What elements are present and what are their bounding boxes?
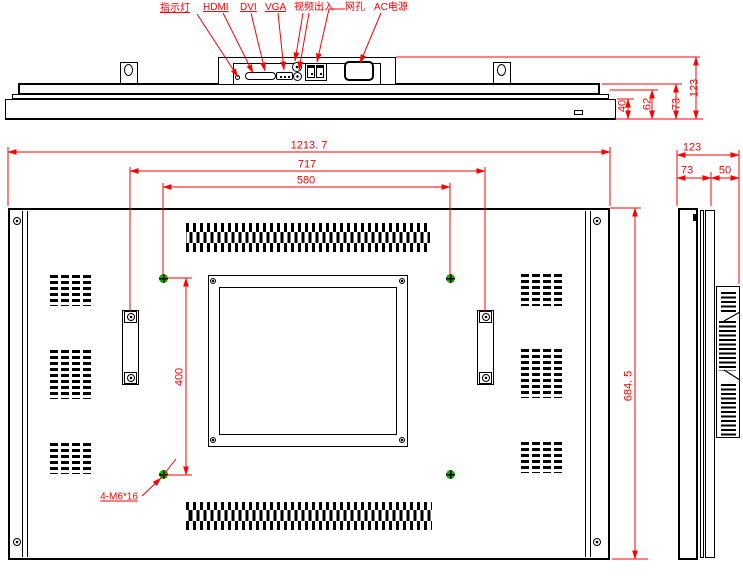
dim-handle-span: 717 — [298, 160, 316, 171]
vent-grid-left-middle — [50, 350, 93, 399]
ac-power-socket — [344, 61, 374, 81]
label-ac-power: AC电源 — [374, 2, 408, 13]
indicator-led — [235, 75, 240, 80]
top-view-handle-left-slot — [124, 64, 133, 76]
label-hdmi: HDMI — [203, 2, 229, 13]
label-video-io: 视频出入 — [294, 2, 334, 13]
access-panel-screw-bottom-left — [210, 437, 216, 443]
access-panel-screw-top-left — [210, 278, 216, 284]
dim-side-total: 123 — [683, 143, 701, 154]
label-vga: VGA — [265, 2, 286, 13]
access-panel-inner — [219, 287, 397, 435]
heatsink-fins-upper — [721, 292, 736, 314]
vesa-hole-bottom-left — [159, 470, 168, 479]
vent-slot-row — [186, 223, 430, 232]
access-panel-screw-top-right — [399, 278, 405, 284]
dim-depth-back: 73 — [672, 97, 683, 111]
access-panel-screw-bottom-right — [399, 437, 405, 443]
top-view-back-body — [18, 83, 600, 94]
vesa-hole-bottom-right — [446, 470, 455, 479]
dim-vesa-width: 580 — [297, 176, 315, 187]
mount-bracket-left-screw-bottom — [127, 374, 135, 382]
note-mount-screws: 4-M6*16 — [100, 492, 138, 503]
rear-corner-screw-top-left — [13, 217, 21, 225]
dim-vesa-height: 400 — [175, 367, 186, 387]
vent-slot-row — [186, 232, 430, 243]
top-view-notch-detail — [574, 110, 583, 115]
mount-bracket-left-screw-top — [127, 313, 135, 321]
side-view-rear-strip-2 — [705, 210, 715, 558]
heatsink-fins-middle — [719, 321, 736, 371]
dim-overall-height: 684. 5 — [624, 370, 635, 403]
vent-slot-row — [186, 510, 432, 521]
heatsink-fins-lower — [721, 384, 736, 437]
rear-vent-bottom — [186, 502, 432, 530]
label-lan-port: 网孔 — [345, 2, 365, 13]
label-indicator: 指示灯 — [160, 3, 190, 14]
vent-grid-left-bottom — [50, 443, 93, 474]
vent-grid-left-top — [50, 275, 93, 306]
rear-corner-screw-bottom-right — [593, 538, 601, 546]
mount-bracket-right-screw-bottom — [482, 374, 490, 382]
engineering-drawing-canvas: 指示灯 HDMI DVI VGA 视频出入 网孔 AC电源 1213. 7 71… — [0, 0, 743, 579]
rear-corner-screw-top-right — [593, 217, 601, 225]
lan-port-1 — [307, 65, 315, 78]
rear-left-edge-strip — [22, 211, 28, 557]
label-dvi: DVI — [240, 2, 257, 13]
dim-depth-front: 40 — [618, 99, 629, 113]
side-view-rear-strip-1 — [700, 210, 704, 558]
rear-corner-screw-bottom-left — [13, 538, 21, 546]
vesa-hole-top-left — [159, 274, 168, 283]
video-jack-lower — [293, 72, 302, 81]
vesa-hole-top-right — [446, 274, 455, 283]
vent-grid-right-bottom — [521, 442, 565, 473]
dim-side-front: 50 — [719, 166, 731, 177]
mount-bracket-right-screw-top — [482, 313, 490, 321]
vent-slot-row — [186, 521, 432, 530]
dim-side-back: 73 — [681, 166, 693, 177]
dim-depth-mid: 62 — [643, 97, 654, 111]
rear-vent-top — [186, 223, 430, 253]
side-view-panel-slab — [678, 208, 698, 560]
lan-port-2 — [316, 65, 324, 78]
vent-grid-right-top — [521, 274, 565, 306]
rear-right-edge-strip — [585, 211, 591, 557]
vent-slot-row — [186, 243, 430, 252]
top-view-front-slab — [5, 99, 616, 120]
vent-grid-right-middle — [521, 349, 565, 398]
dim-overall-width: 1213. 7 — [291, 141, 328, 152]
vent-slot-row — [186, 502, 432, 510]
vga-port — [276, 72, 293, 80]
hdmi-dvi-port-bar — [245, 72, 276, 80]
dim-depth-total: 123 — [690, 78, 701, 98]
side-view-tick-detail — [693, 214, 696, 221]
video-jack-upper — [292, 62, 302, 72]
top-view-handle-right-slot — [497, 64, 506, 76]
